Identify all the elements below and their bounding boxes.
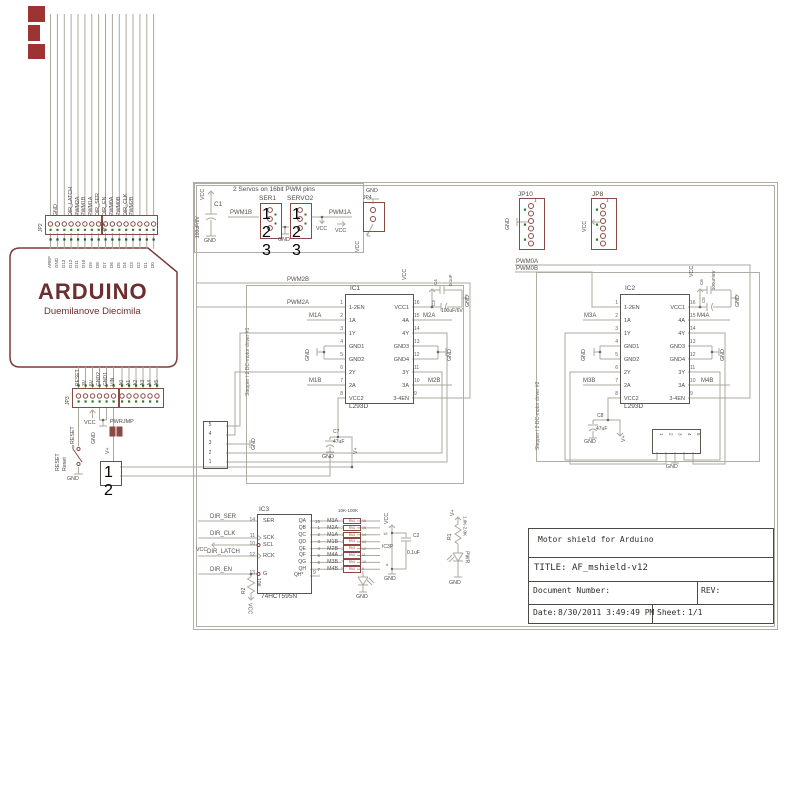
jp3-label: JP3: [66, 391, 71, 405]
rn-pin: 12: [361, 547, 374, 551]
terminal1-pins: 54321: [205, 422, 215, 468]
ic-pin-num: 1: [311, 525, 322, 530]
ic-pin-num: 6: [327, 365, 343, 378]
ic-pin-num: 10: [240, 540, 255, 548]
rn-resistor: RN1: [343, 566, 361, 573]
motor-net: M2A: [322, 525, 338, 531]
ic-pin-name: QG: [280, 559, 306, 566]
ic-pin-name: 4Y: [369, 327, 409, 340]
ic-pin-name: QB: [280, 524, 306, 531]
vcc-label: VCC: [385, 510, 390, 524]
rn-pin: 14: [361, 533, 374, 537]
c7-ref: C7: [333, 430, 339, 435]
rn-pin: 9: [361, 567, 374, 571]
ic-pin-num: 14: [690, 326, 706, 339]
signal-label: PWM0B: [116, 166, 123, 216]
ic-pin-num: 4: [311, 546, 322, 551]
c1-value: 100uF/6V: [196, 206, 201, 238]
ic-pin-num: 4: [602, 339, 618, 352]
ic-pin-num: 1: [602, 300, 618, 313]
pin-label: GND2: [96, 363, 103, 386]
pin-label: D9: [88, 251, 95, 268]
rn-pin: 11: [361, 553, 374, 557]
m4b-net: M4B: [701, 378, 713, 384]
m2b-net: M2B: [428, 378, 440, 384]
terminal-pin: 3: [673, 433, 682, 447]
pin-label: GND: [54, 251, 61, 268]
ic2-right-pin-names: VCC14A4YGND3GND43Y3A3-4EN: [645, 301, 685, 405]
ic-pin-name: GND4: [645, 353, 685, 366]
dir-en-net: DIR_EN: [210, 567, 232, 573]
jp1-label: JP1: [102, 218, 107, 232]
gnd-label: GND: [384, 577, 396, 582]
schematic-page: GND DIR_LATCHPWM2APWM1BPWM1ADIR_SERDIR_E…: [0, 0, 800, 800]
driver1-frame-label: Stepper / 2 DC-motor driver #1: [246, 296, 251, 396]
dir-clk-net: DIR_CLK: [210, 531, 235, 537]
terminal-pin: 5: [692, 433, 701, 447]
vplus-label: V+: [622, 430, 627, 442]
rn-row: 15 M3A 1 RN1 16: [311, 518, 374, 525]
driver2-frame-label: Stepper / 2 DC-motor driver #2: [536, 350, 541, 450]
vcc-label: VCC: [316, 227, 327, 232]
motor-net: M4B: [322, 566, 338, 572]
gnd-label: GND: [721, 343, 726, 361]
pwm1a-net: PWM1A: [329, 210, 351, 216]
gnd-label: GND: [584, 440, 596, 445]
terminal-pin: 1: [104, 464, 113, 482]
c5-value: 100uF/6V: [712, 264, 717, 290]
ic-pin-name: GND3: [645, 340, 685, 353]
ic-pin-name: GND3: [369, 340, 409, 353]
ic-pin-num: 7: [602, 378, 618, 391]
rn-pin: 10: [361, 560, 374, 564]
connector-pin: 3: [292, 242, 301, 260]
power-analog-divider: [118, 388, 120, 408]
servo2-pins: 123: [292, 206, 301, 260]
ic-pin-name: 3A: [645, 379, 685, 392]
signal-label: PWM2B: [129, 166, 136, 216]
vcc-label: VCC: [356, 236, 361, 252]
connector-pin: 2: [262, 224, 271, 242]
pwm2b-net: PWM2B: [287, 277, 309, 283]
rn-resistor: RN1: [343, 559, 361, 566]
title-value: AF_mshield-v12: [572, 564, 648, 573]
ic3p-pin-top: 16: [383, 532, 387, 536]
vcc-label: VCC: [196, 548, 207, 553]
motor-net: M2B: [322, 546, 338, 552]
pwr-led-label: PWR: [463, 551, 468, 569]
ic-pin-num: 4: [327, 339, 343, 352]
m3a-net: M3A: [584, 313, 596, 319]
jp10-connector: [519, 198, 545, 250]
rn-row: 2 M1A 3 RN1 14: [311, 531, 374, 538]
gnd-label: GND: [67, 477, 79, 482]
gnd-label: GND: [252, 434, 257, 450]
terminal-pin: 2: [205, 450, 215, 459]
terminal-pin: 3: [205, 440, 215, 449]
power-terminal-pins: 12: [104, 464, 113, 500]
sheet-value: 1/1: [688, 609, 702, 617]
gnd-label: GND: [306, 343, 311, 361]
ic-pin-num: 13: [414, 339, 430, 352]
gnd-label: GND: [278, 238, 290, 243]
ic-pin-name: GND4: [369, 353, 409, 366]
project-name: Motor shield for Arduino: [538, 536, 654, 544]
ic-pin-num: 3: [327, 326, 343, 339]
pwm2a-net: PWM2A: [287, 300, 309, 306]
analog-pin-labels: A0A1A2A3A4A5: [119, 363, 161, 386]
pwm0b-net: PWM0B: [516, 266, 538, 272]
jp8-pin1: 1: [606, 199, 609, 204]
ic-pin-num: 2: [602, 313, 618, 326]
c6-ref: C6: [700, 275, 705, 285]
terminal-pin: 4: [205, 431, 215, 440]
reset-button-ref: RESET: [56, 447, 61, 471]
rn-rows: 15 M3A 1 RN1 16 1 M2A 2 RN1 15 2 M1A 3 R…: [311, 518, 374, 573]
ic2-ref: IC2: [625, 286, 635, 293]
r2-value: 10K: [255, 578, 260, 594]
terminal-pin: 5: [205, 422, 215, 431]
ic-pin-name: QE: [280, 545, 306, 552]
gnd-label: GND: [736, 289, 741, 307]
m3b-net: M3B: [583, 378, 595, 384]
pin-label: D6: [109, 251, 116, 268]
gnd-label: GND: [356, 595, 368, 600]
pin-label: A2: [133, 363, 140, 386]
pin-label: 3V: [82, 363, 89, 386]
dir-ser-net: DIR_SER: [210, 514, 236, 520]
ic-pin-num: 6: [311, 560, 322, 565]
gnd-label: GND: [582, 343, 587, 361]
pin-label: D13: [61, 251, 68, 268]
motor-net: M1B: [322, 539, 338, 545]
reset-button-name: Reset: [63, 447, 68, 471]
c4-value: 0.1uF: [449, 266, 454, 286]
gnd-label: GND: [92, 428, 97, 444]
vplus-label: V+: [451, 504, 456, 516]
arduino-title: ARDUINO: [38, 281, 148, 303]
jp8-ref: JP8: [592, 192, 603, 199]
rn-pin: 15: [361, 526, 374, 530]
jp10-ref: JP10: [518, 192, 533, 199]
ic-pin-num: 3: [602, 326, 618, 339]
gnd-label: GND: [466, 289, 471, 307]
ser1-pins: 123: [262, 206, 271, 260]
jp8-connector: [591, 198, 617, 250]
gnd-label: GND: [204, 239, 216, 244]
vcc-label: VCC: [201, 186, 206, 200]
c7-value: 47uF: [333, 440, 344, 445]
digital-signal-labels: DIR_LATCHPWM2APWM1BPWM1ADIR_SERDIR_ENPWM…: [68, 166, 137, 216]
ic-pin-num: 16: [414, 300, 430, 313]
power-pin-labels: RESET3V5VGND2GND1VIN: [75, 363, 117, 386]
connector-pin: 1: [262, 206, 271, 224]
terminal-pin: 4: [683, 433, 692, 447]
c8-value: 47uF: [596, 427, 607, 432]
c8-ref: C8: [597, 414, 603, 419]
vcc-label: VCC: [690, 263, 695, 277]
dir-latch-net: DIR_LATCH: [207, 549, 240, 555]
ic2-left-pin-nums: 12345678: [602, 300, 618, 404]
motor-net: M1A: [322, 532, 338, 538]
c4-ref: C4: [434, 275, 439, 285]
ic3-part: 74HCT595N: [261, 594, 297, 601]
c1-ref: C1: [214, 202, 222, 209]
pin-label: VIN: [110, 363, 117, 386]
ic-pin-num: 12: [414, 352, 430, 365]
ic3p-ref: IC3P: [382, 545, 393, 550]
pin-label: RESET: [75, 363, 82, 386]
ic-pin-name: 3-4EN: [369, 392, 409, 405]
ic-pin-name: 3-4EN: [645, 392, 685, 405]
arduino-subtitle: Duemilanove Diecimila: [44, 307, 141, 317]
pin-label: A0: [119, 363, 126, 386]
ic-pin-name: 3Y: [369, 366, 409, 379]
vcc-label: VCC: [583, 214, 588, 232]
ic1-ref: IC1: [350, 286, 360, 293]
ic-pin-num: 11: [690, 365, 706, 378]
connector-pin: 3: [262, 242, 271, 260]
m2a-net: M2A: [423, 313, 435, 319]
r2-ref: R2: [242, 578, 247, 594]
gnd-label: GND: [448, 343, 453, 361]
digital-pin-labels: AREFGNDD13D12D11D10D9D8D7D6D5D4D3D2D1D0: [47, 251, 157, 268]
c2-ref: C2: [413, 534, 419, 539]
pin-label: GND1: [103, 363, 110, 386]
ic-pin-num: 2: [311, 532, 322, 537]
jp10-pin1: 1: [534, 199, 537, 204]
gnd-label: GND: [506, 212, 511, 230]
title-label: TITLE:: [534, 564, 567, 573]
ic-pin-name: 4Y: [645, 327, 685, 340]
doc-number-label: Document Number:: [533, 587, 610, 595]
ic-pin-num: 5: [311, 553, 322, 558]
ic-pin-num: 5: [327, 352, 343, 365]
jp4-connector: [363, 202, 385, 232]
c3-ref: C3: [432, 296, 437, 306]
ic-pin-num: 11: [240, 533, 255, 541]
terminal-pin: 1: [205, 459, 215, 468]
rn-pin: 16: [361, 519, 374, 523]
rn-title: 10K-100K: [338, 509, 358, 514]
pin-label: 5V: [89, 363, 96, 386]
signal-label: DIR_EN: [102, 166, 109, 216]
date-label: Date:: [533, 609, 557, 617]
motor-net: M4A: [322, 552, 338, 558]
ic-pin-num: 12: [690, 352, 706, 365]
m1b-net: M1B: [309, 378, 321, 384]
ic-pin-num: 15: [311, 519, 322, 524]
ser1-ref: SER1: [259, 196, 276, 203]
signal-label: DIR_LATCH: [68, 166, 75, 216]
vcc-label: VCC: [335, 229, 346, 234]
ic-pin-name: 3A: [369, 379, 409, 392]
gnd-label: GND: [666, 465, 678, 470]
c5-ref: C5: [702, 293, 707, 303]
pin-label: D2: [136, 251, 143, 268]
ic-pin-num: 9: [414, 391, 430, 404]
connector-pin: 2: [292, 224, 301, 242]
ic-pin-num: 3: [311, 539, 322, 544]
ic3p-pin-bot: 8: [386, 563, 388, 567]
sheet-label: Sheet:: [657, 609, 686, 617]
ic-pin-name: 4A: [369, 314, 409, 327]
ic-pin-num: 6: [602, 365, 618, 378]
ic-pin-num: 7: [327, 378, 343, 391]
gnd-label: GND: [322, 455, 334, 460]
rn-resistor: RN1: [343, 525, 361, 532]
c2-value: 0.1uF: [407, 551, 420, 556]
rn-row: 3 M1B 4 RN1 13: [311, 538, 374, 545]
terminal-pin: 2: [104, 482, 113, 500]
r1-value: 1.0K-2.0K: [462, 516, 467, 548]
date-value: 8/30/2011 3:49:49 PM: [558, 609, 654, 617]
rn-resistor: RN1: [343, 538, 361, 545]
gnd-signal-label: GND: [54, 172, 59, 216]
rn-row: 4 M2B 5 RN1 12: [311, 545, 374, 552]
servo-caption: 2 Servos on 16bit PWM pins: [233, 187, 315, 194]
ic3-left-pin-nums: 1411101213: [240, 516, 255, 577]
pin-label: D1: [143, 251, 150, 268]
ic-pin-name: VCC1: [645, 301, 685, 314]
pwm1b-net: PWM1B: [230, 210, 252, 216]
rev-label: REV:: [701, 587, 720, 595]
rn-pin: 13: [361, 540, 374, 544]
rn-row: 5 M4A 6 RN1 11: [311, 552, 374, 559]
rn-row: 7 M4B 8 RN1 9: [311, 566, 374, 573]
ic-pin-num: 14: [414, 326, 430, 339]
ic-pin-num: 14: [240, 516, 255, 524]
pin-label: AREF: [47, 251, 54, 268]
servo2-ref: SERVO2: [287, 196, 313, 203]
ic-pin-num: 8: [327, 391, 343, 404]
vcc-label: VCC: [84, 421, 96, 427]
jp2-label: JP2: [39, 218, 44, 232]
ic3-output-names: QAQBQCQDQEQFQGQH: [280, 518, 306, 573]
rn-row: 6 M3B 7 RN1 10: [311, 559, 374, 566]
pwm0a-net: PWM0A: [516, 259, 538, 265]
reset-net-label: RESET: [71, 424, 76, 444]
gnd-label: GND: [366, 189, 378, 194]
vcc-label: VCC: [403, 266, 408, 280]
terminal-pin: 2: [664, 433, 673, 447]
ic-pin-name: 4A: [645, 314, 685, 327]
ic-pin-name: VCC1: [369, 301, 409, 314]
pin-label: D0: [150, 251, 157, 268]
ic-pin-num: 12: [240, 551, 255, 559]
ic-pin-num: 9: [690, 391, 706, 404]
terminal2-pins: 12345: [655, 433, 701, 447]
pin-label: A4: [147, 363, 154, 386]
r1-ref: R1: [448, 526, 453, 540]
jp4-ref: JP4: [363, 196, 372, 201]
ic1-right-pin-names: VCC14A4YGND3GND43Y3A3-4EN: [369, 301, 409, 405]
m4a-net: M4A: [697, 313, 709, 319]
connector-pin: 1: [292, 206, 301, 224]
c3-value: 100uF/6V: [441, 309, 463, 314]
signal-label: DIR_SER: [95, 166, 102, 216]
vplus-label: V+: [354, 442, 359, 454]
rn-resistor: RN1: [343, 545, 361, 552]
pin-label: A5: [154, 363, 161, 386]
ic-pin-name: QA: [280, 518, 306, 525]
ic-pin-name: QD: [280, 538, 306, 545]
ic-pin-num: 11: [414, 365, 430, 378]
ic-pin-name: 3Y: [645, 366, 685, 379]
ic3-ref: IC3: [259, 507, 269, 514]
ic1-left-pin-nums: 12345678: [327, 300, 343, 404]
pwrjmp-label: PWRJMP: [110, 420, 134, 426]
rn-resistor: RN1: [343, 518, 361, 525]
motor-net: M3A: [322, 518, 338, 524]
rn-resistor: RN1: [343, 532, 361, 539]
ic-pin-num: 13: [240, 569, 255, 577]
vplus-label: V+: [106, 442, 111, 454]
ic-pin-num: 2: [327, 313, 343, 326]
ic-pin-num: 8: [602, 391, 618, 404]
motor-net: M3B: [322, 559, 338, 565]
ic-pin-num: 5: [602, 352, 618, 365]
pin-label: D8: [95, 251, 102, 268]
ic-pin-num: 13: [690, 339, 706, 352]
signal-label: PWM0A: [109, 166, 116, 216]
pin-label: D7: [102, 251, 109, 268]
vcc-label: VCC: [246, 603, 251, 619]
pin-label: A1: [126, 363, 133, 386]
qh2-name: QH*: [294, 573, 303, 578]
rn-resistor: RN1: [343, 552, 361, 559]
m1a-net: M1A: [309, 313, 321, 319]
ic-pin-num: 7: [311, 567, 322, 572]
ic-pin-name: QF: [280, 552, 306, 559]
ic-pin-num: 1: [327, 300, 343, 313]
rn-row: 1 M2A 2 RN1 15: [311, 524, 374, 531]
gnd-label: GND: [449, 581, 461, 586]
pin-label: A3: [140, 363, 147, 386]
ic-pin-name: QC: [280, 531, 306, 538]
terminal-pin: 1: [655, 433, 664, 447]
